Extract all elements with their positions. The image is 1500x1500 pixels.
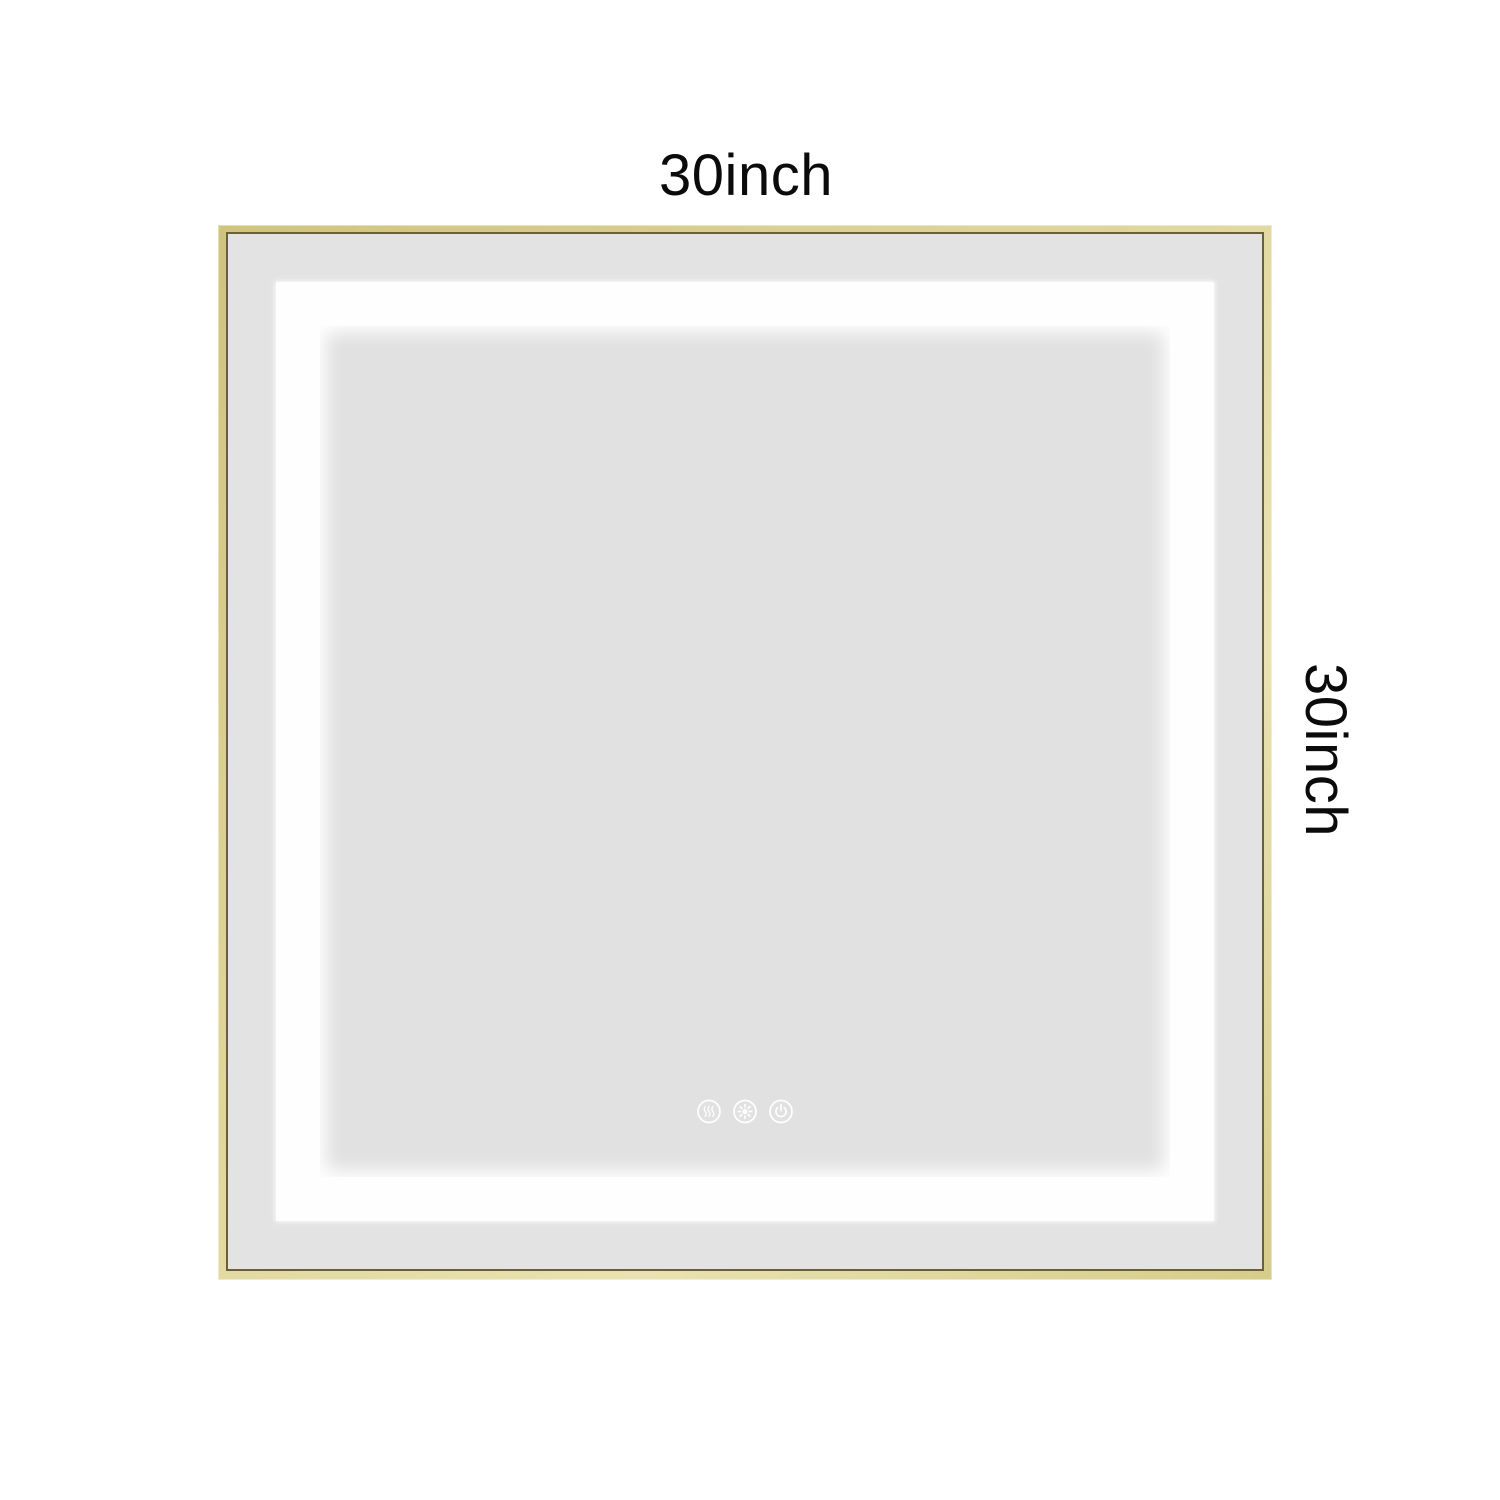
steam-waves-icon — [697, 1099, 722, 1124]
brightness-button — [733, 1099, 758, 1124]
mirror-outer-glass — [228, 234, 1262, 1269]
product-diagram-canvas: { "labels": { "width_label": "30inch", "… — [0, 0, 1500, 1500]
height-dimension-label: 30inch — [1296, 663, 1354, 837]
width-dimension-label: 30inch — [659, 147, 833, 205]
power-icon — [769, 1099, 794, 1124]
defog-button — [697, 1099, 722, 1124]
touch-control-row — [697, 1099, 794, 1124]
mirror-gold-frame — [218, 225, 1272, 1280]
led-light-band — [276, 282, 1214, 1221]
sun-icon — [733, 1099, 758, 1124]
power-button — [769, 1099, 794, 1124]
mirror-inner-glass — [320, 326, 1170, 1177]
